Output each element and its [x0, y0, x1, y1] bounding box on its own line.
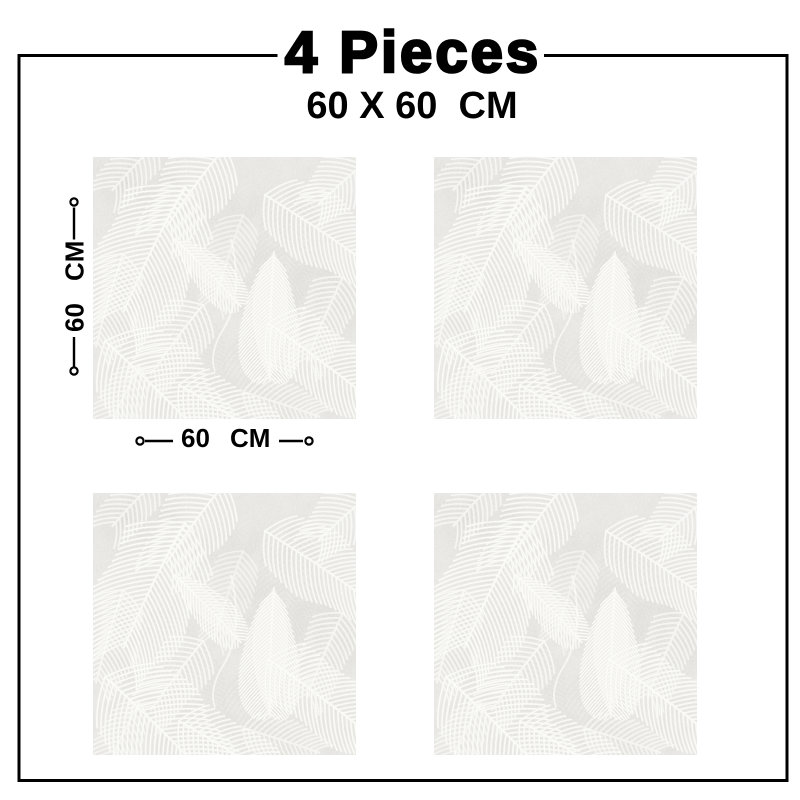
svg-text:60: 60: [60, 303, 90, 332]
svg-text:60 X 60 CM: 60 X 60 CM: [306, 85, 517, 127]
svg-text:CM: CM: [60, 241, 90, 281]
svg-text:60: 60: [181, 423, 210, 453]
svg-text:4 Pieces: 4 Pieces: [285, 20, 541, 85]
svg-text:CM: CM: [230, 423, 270, 453]
